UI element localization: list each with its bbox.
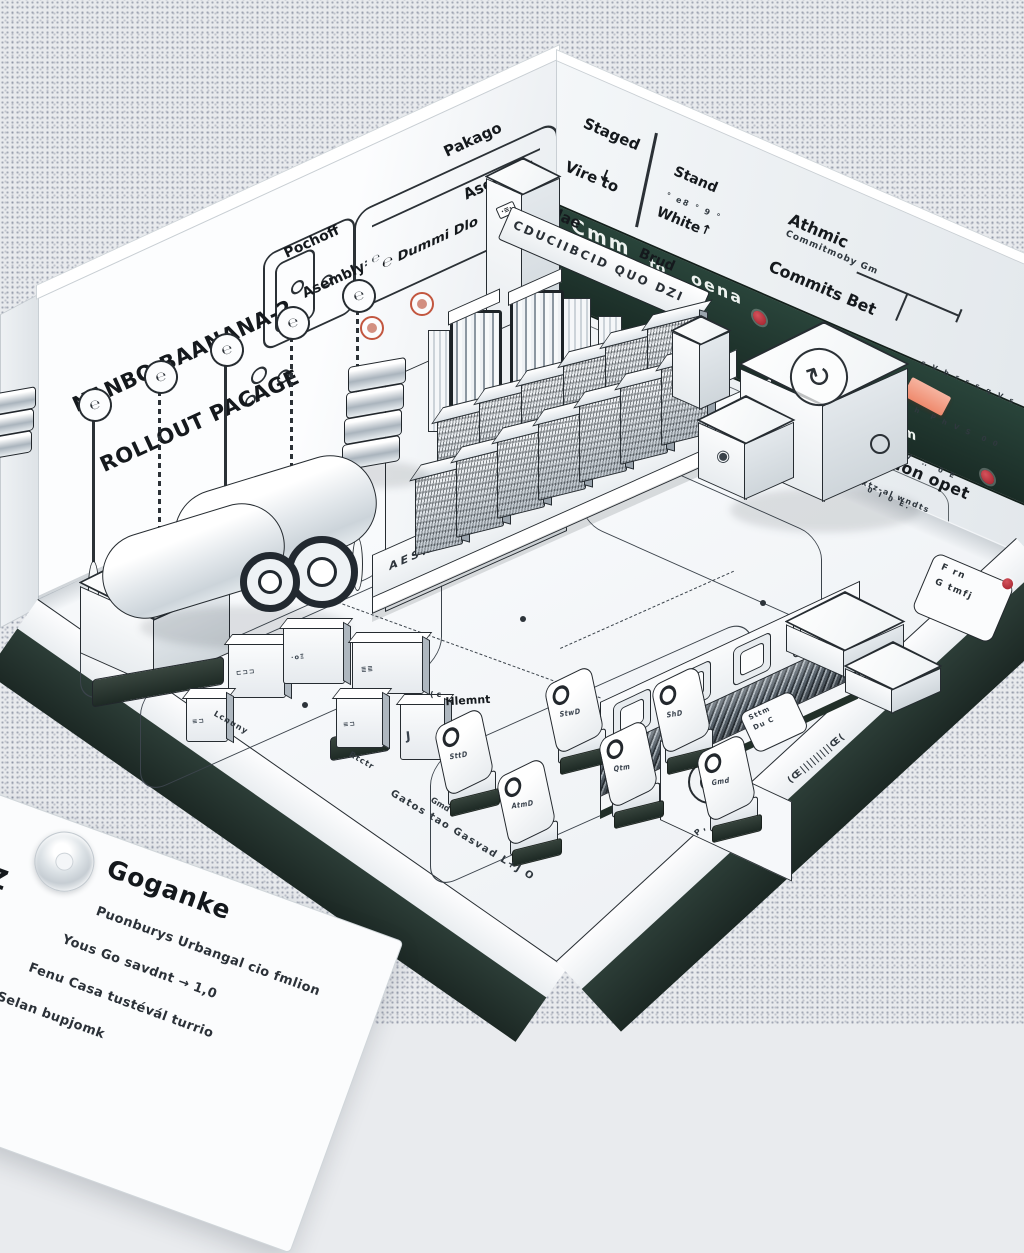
cylinder-eye-1	[240, 552, 300, 612]
dummi-colon: : ℮	[364, 252, 380, 270]
tag-button-head: StwD	[543, 664, 604, 755]
tag-button-head: Gmd	[695, 732, 756, 823]
dummi-note: ℮ Dummi Dlo	[382, 215, 478, 273]
small-cube-spiral-icon: ◉	[714, 445, 731, 466]
tag-button-head: Qtm	[597, 718, 658, 809]
tag-button: SttD	[438, 718, 504, 814]
tag-button: AtmD	[500, 768, 566, 864]
keycap: ≣≣	[352, 640, 424, 694]
face-left	[845, 668, 894, 714]
path-dot-5	[760, 600, 766, 606]
face-right	[891, 668, 941, 714]
tag-button-label: ShD	[666, 709, 682, 720]
wall-note-line2: F h P h V S 0 0	[900, 398, 1002, 453]
keycap-label: ≣≣	[361, 664, 375, 673]
tag-button: Gmd	[700, 744, 766, 840]
hlemnt-pre: ( c	[430, 690, 441, 699]
tag-button-label: AtmD	[511, 799, 533, 811]
face-left	[786, 624, 846, 678]
left-wall-end-cap	[0, 292, 42, 628]
keycap-label: ·oΞ	[291, 652, 306, 661]
tag-button-label: StwD	[559, 707, 580, 719]
tag-button-head: ShD	[650, 664, 711, 755]
staged-label-line1: Staged	[581, 116, 642, 154]
pakago-label-line1: Pakago	[442, 114, 518, 160]
bracket-center-tick	[895, 293, 909, 321]
small-cube	[698, 396, 794, 498]
tag-button-label: SttD	[449, 750, 467, 762]
staged-label-line2: Vire to	[562, 160, 623, 198]
keycap-label: ≡⊐	[191, 717, 205, 726]
face-right	[744, 422, 794, 500]
side-panel-box	[672, 316, 730, 408]
keycap: ·oΞ	[283, 626, 345, 684]
pochoff-label-line1: Pochoff	[282, 220, 349, 261]
orange-ring-marker-2	[410, 292, 434, 316]
keycap-label: ⊏⊐⊐	[235, 667, 255, 677]
cube-side-dot	[870, 434, 890, 454]
card-line-3: Fenu Casa tustévál turrio	[26, 960, 215, 1041]
orange-ring-marker-1	[360, 316, 384, 340]
path-dot-4	[302, 702, 308, 708]
step-slab-2	[845, 642, 941, 712]
keycap: ⊏⊐⊐	[228, 642, 286, 698]
keycap-label: J	[406, 729, 413, 743]
tag-button-label: Gmd	[711, 776, 729, 788]
hlemnt-line1: Hlemnt	[445, 694, 491, 708]
keycap: ≡⊐	[336, 696, 384, 748]
tag-button-label: Qtm	[613, 762, 630, 773]
card-z-mark: Z	[0, 861, 12, 897]
path-dot-2	[520, 616, 526, 622]
disc-icon	[26, 823, 103, 900]
keycap-label: ≡⊐	[342, 719, 356, 728]
stand-label-line1: Stand	[671, 164, 720, 196]
